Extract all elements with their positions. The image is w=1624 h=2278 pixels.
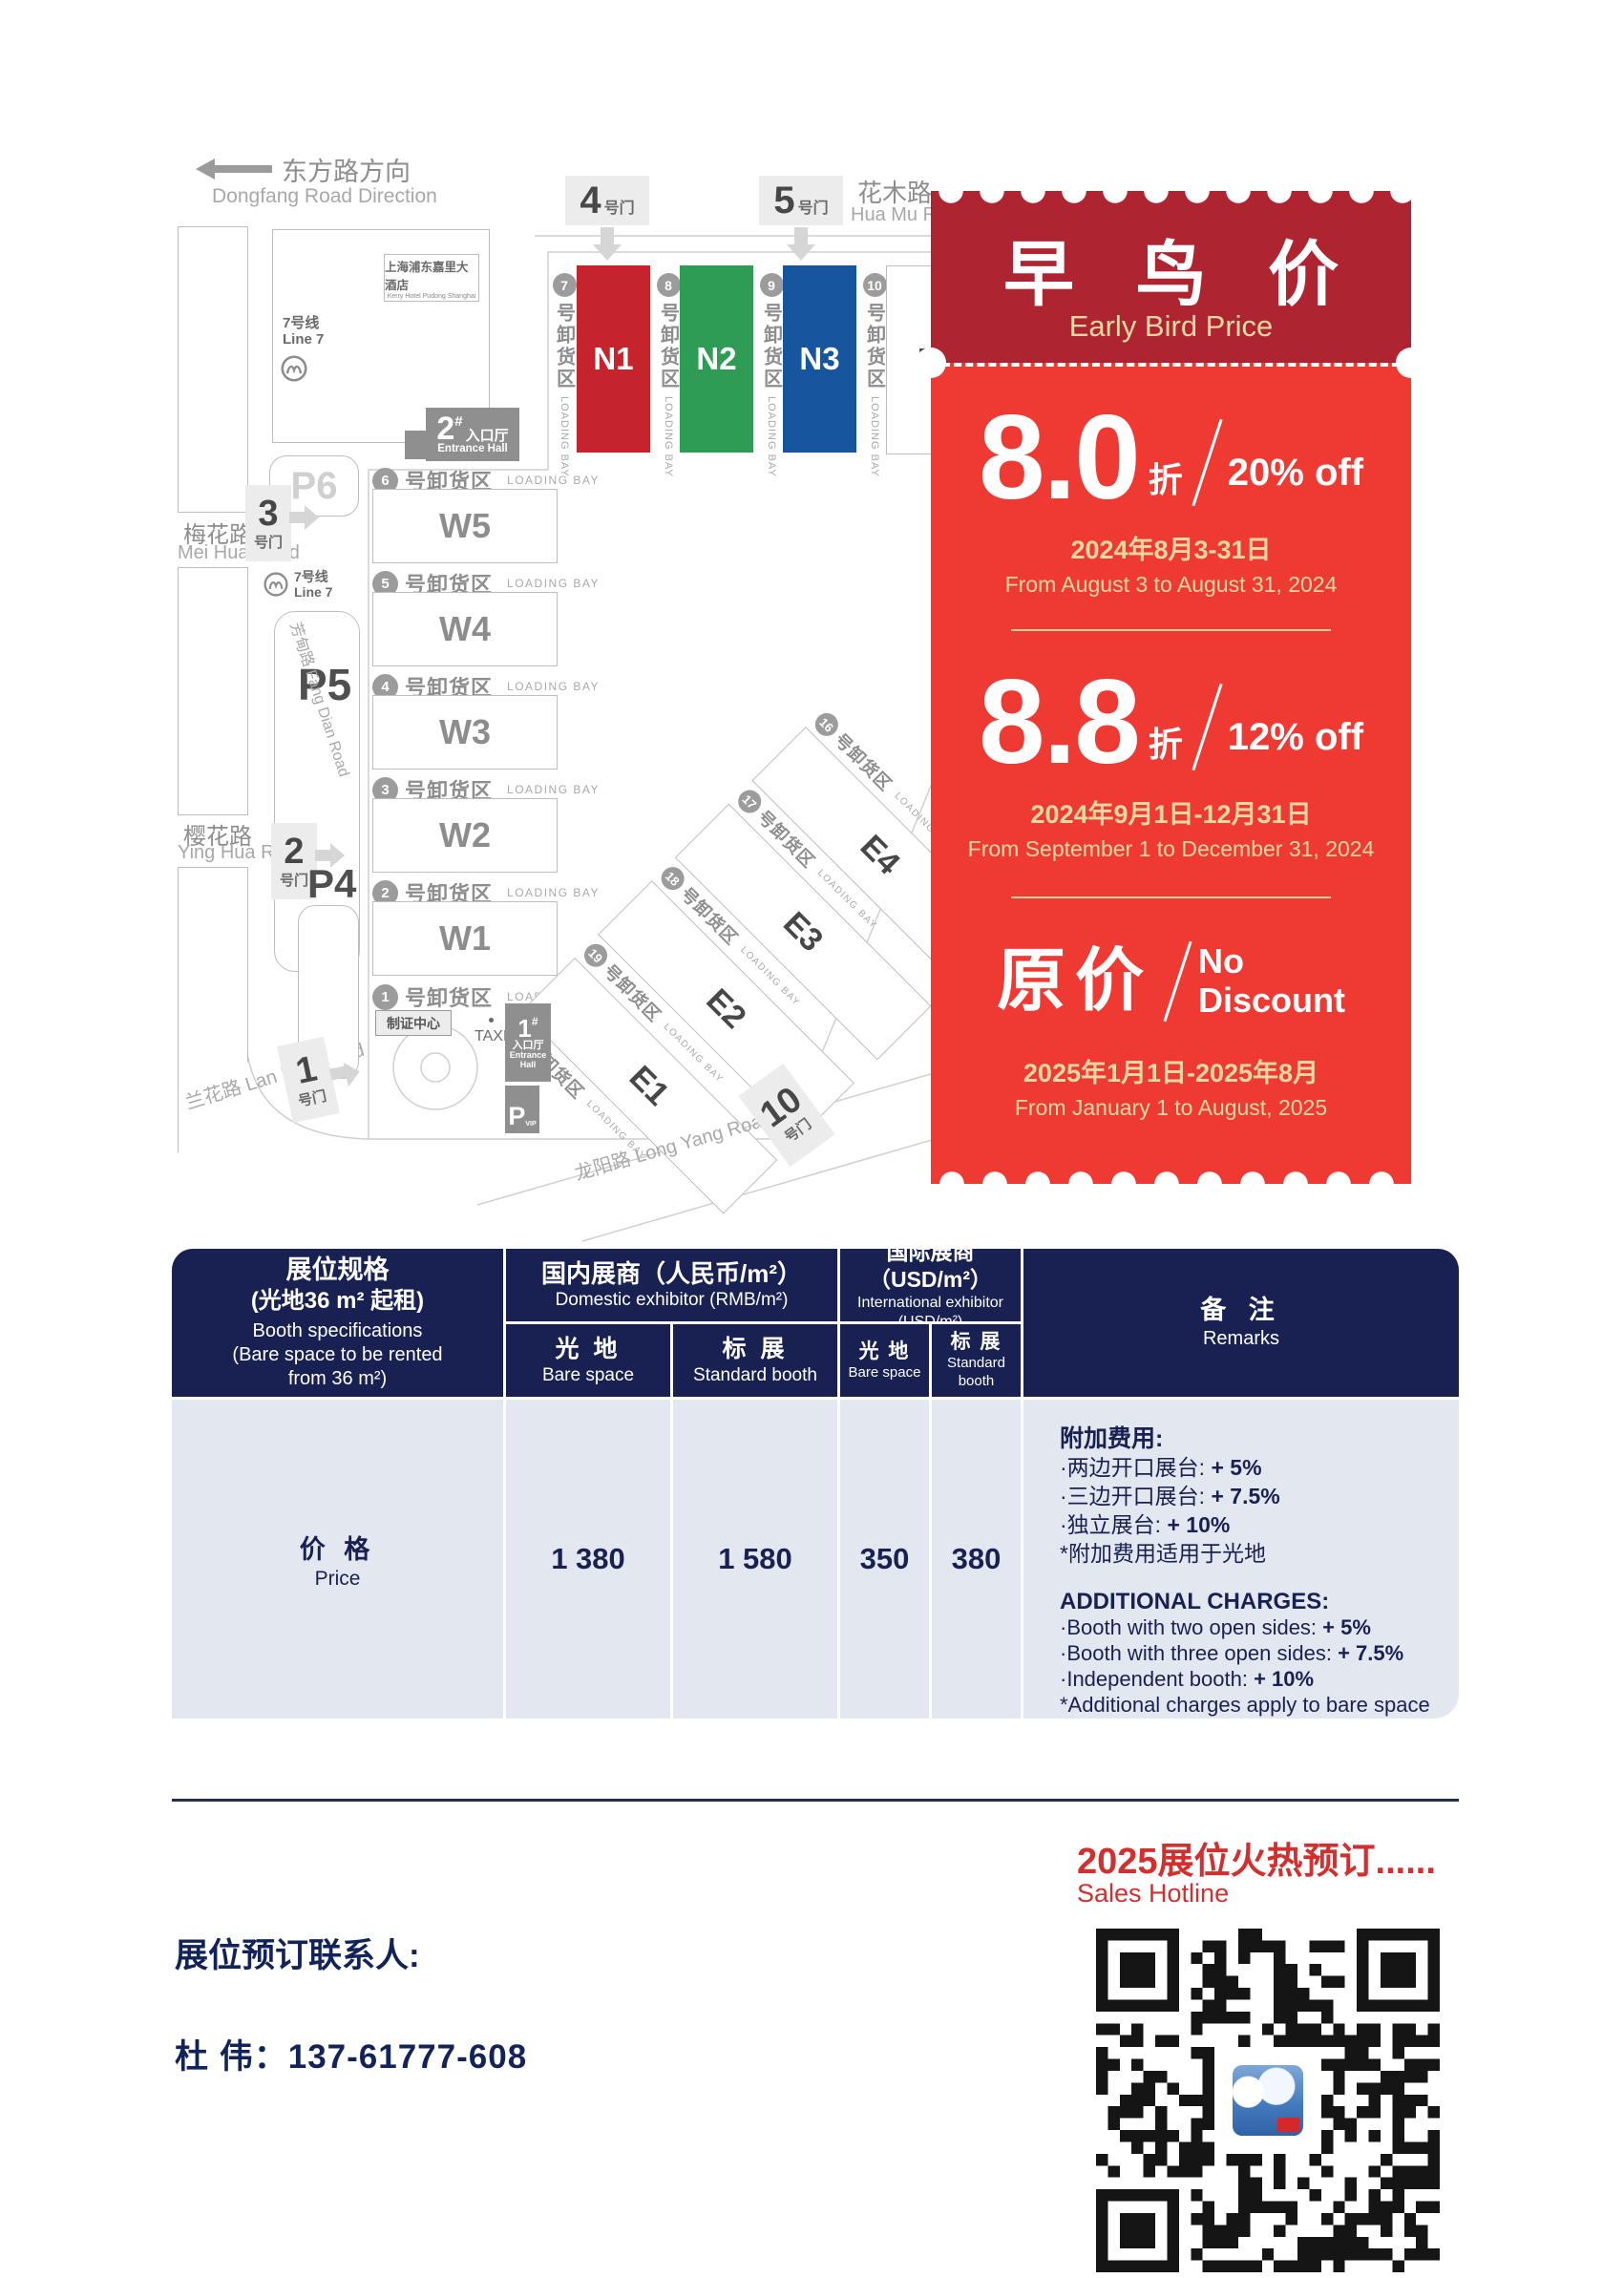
city-block-2: [178, 567, 248, 815]
loading-bay-8: 8 号卸货区 LOADING BAY: [655, 273, 682, 477]
entrance-2-hash: #: [454, 414, 462, 430]
tier3-label-en: No Discount: [1198, 941, 1345, 1021]
remarks-en-title: ADDITIONAL CHARGES:: [1060, 1589, 1444, 1614]
coupon-title-zh: 早 鸟 价: [931, 218, 1411, 320]
gate-5: 5号门: [759, 176, 843, 225]
remarks-en-item: ·Independent booth: + 10%: [1060, 1666, 1444, 1692]
road-dongfang-en: Dongfang Road Direction: [212, 185, 437, 208]
tier2-date-en: From September 1 to December 31, 2024: [931, 836, 1411, 862]
footer-divider: [172, 1799, 1459, 1802]
price-international-standard: 380: [932, 1400, 1021, 1719]
dongfang-arrow-icon: [196, 158, 215, 179]
tier1-slash: [1192, 418, 1222, 505]
row-label-price: 价 格 Price: [172, 1400, 503, 1719]
tier1-date-en: From August 3 to August 31, 2024: [931, 572, 1411, 598]
entrance-hall-1: 1 # 入口厅 Entrance Hall: [505, 1003, 551, 1082]
tier3-date-zh: 2025年1月1日-2025年8月: [931, 1052, 1411, 1089]
wechat-qr-code: [1096, 1929, 1440, 2272]
coupon-divider-1: [1011, 629, 1331, 631]
entrance-1-hash: #: [532, 1016, 538, 1028]
parking-p4-label: P4: [307, 861, 356, 907]
col-header-spec: 展位规格 (光地36 m² 起租) Booth specifications (…: [172, 1249, 503, 1397]
loading-bay-9: 9 号卸货区 LOADING BAY: [758, 273, 785, 477]
gate-4-arrow-icon: [601, 227, 614, 244]
coupon-scallop-bottom: [931, 1170, 1411, 1184]
metro-line7-label: 7号线 Line 7: [283, 315, 324, 348]
hotel-label-box: 上海浦东嘉里大酒店 Kerry Hotel Pudong Shanghai: [384, 254, 479, 302]
gate-3-arrow-icon: [289, 512, 305, 523]
remarks-cn-item: ·两边开口展台: + 5%: [1060, 1453, 1444, 1482]
qr-center-logo: [1227, 2059, 1309, 2141]
subheader-international-standard: 标 展 Standard booth: [932, 1324, 1021, 1397]
tier2-unit: 折: [1149, 717, 1183, 767]
entrance-1-num: 1: [517, 1016, 531, 1041]
venue-map: 东方路方向 Dongfang Road Direction 4号门 5号门 花木…: [0, 0, 1050, 1260]
gate-4-arrow-head: [593, 244, 622, 261]
tier1-number: 8.0: [979, 410, 1139, 508]
taxi-dot: [489, 1018, 494, 1023]
remarks-en-note: *Additional charges apply to bare space: [1060, 1692, 1444, 1718]
subheader-domestic-bare: 光 地 Bare space: [506, 1324, 670, 1397]
hall-w1: W1: [372, 901, 558, 976]
entrance-hall-2-step: [405, 431, 426, 459]
early-bird-coupon: 早 鸟 价 Early Bird Price 8.0 折 20% off 202…: [931, 191, 1411, 1184]
qr-logo-sky-image: [1233, 2065, 1303, 2136]
hall-w4: W4: [372, 592, 558, 666]
hall-w5: W5: [372, 489, 558, 563]
tier2-percent: 12% off: [1228, 716, 1363, 759]
qr-logo-flag-icon: [1277, 2118, 1300, 2132]
gate-5-arrow-head: [787, 244, 815, 261]
loading-bay-7: 7 号卸货区 LOADING BAY: [551, 273, 578, 477]
vip-parking: P VIP: [505, 1086, 539, 1133]
road-dongfang-zh: 东方路方向: [282, 151, 411, 188]
gate-3-arrow-head: [305, 505, 319, 530]
tier2-date-zh: 2024年9月1日-12月31日: [931, 793, 1411, 831]
metro-icon-2: [264, 572, 288, 597]
discount-tier-2: 8.8 折 12% off 2024年9月1日-12月31日 From Sept…: [931, 674, 1411, 862]
col-header-remarks: 备 注 Remarks: [1023, 1249, 1459, 1397]
subheader-domestic-standard: 标 展 Standard booth: [673, 1324, 837, 1397]
metro-line7-label-2: 7号线 Line 7: [264, 569, 332, 600]
entrance-1-en2: Hall: [520, 1061, 537, 1069]
hall-w3: W3: [372, 695, 558, 770]
metro-icon: [281, 355, 307, 382]
sales-hotline-title: 2025展位火热预订......: [1077, 1831, 1436, 1884]
coupon-divider-2: [1011, 896, 1331, 898]
hall-n3: N3: [783, 265, 856, 453]
remarks-cn-item: ·独立展台: + 10%: [1060, 1510, 1444, 1539]
tier3-label-zh: 原价: [997, 949, 1153, 1014]
entrance-hall-2: 2 # 入口厅 Entrance Hall: [426, 408, 519, 461]
coupon-scallop-top: [931, 191, 1411, 205]
group-header-domestic: 国内展商（人民币/m²） Domestic exhibitor (RMB/m²): [506, 1249, 837, 1321]
hotel-name-zh: 上海浦东嘉里大酒店: [385, 257, 478, 293]
gate-3: 3号门: [245, 485, 291, 561]
booking-contact-phone: 杜 伟：137-61777-608: [175, 2030, 527, 2078]
tier1-date-zh: 2024年8月3-31日: [931, 529, 1411, 566]
badge-center: 制证中心: [375, 1010, 452, 1036]
gate-2-arrow-icon: [315, 850, 330, 861]
hall-n1: N1: [577, 265, 650, 453]
coupon-header: 早 鸟 价 Early Bird Price: [931, 191, 1411, 363]
remarks-cn-title: 附加费用:: [1060, 1424, 1444, 1453]
hall-w2: W2: [372, 798, 558, 873]
booking-contact-label: 展位预订联系人:: [175, 1929, 420, 1977]
remarks-en-item: ·Booth with two open sides: + 5%: [1060, 1614, 1444, 1640]
remarks-cn-item: ·三边开口展台: + 7.5%: [1060, 1482, 1444, 1510]
tier1-unit: 折: [1149, 453, 1183, 502]
tier3-slash: [1163, 941, 1192, 1023]
loading-bay-10: 10 号卸货区 LOADING BAY: [861, 273, 888, 477]
tier2-slash: [1192, 683, 1222, 770]
tier3-date-en: From January 1 to August, 2025: [931, 1095, 1411, 1121]
coupon-notch-right: [1396, 348, 1426, 378]
tier1-percent: 20% off: [1228, 452, 1363, 495]
entrance-2-en: Entrance Hall: [437, 443, 508, 454]
coupon-notch-left: [916, 348, 946, 378]
remarks-cell: 附加费用: ·两边开口展台: + 5% ·三边开口展台: + 7.5% ·独立展…: [1023, 1400, 1459, 1719]
price-domestic-bare: 1 380: [506, 1400, 670, 1719]
remarks-cn-note: *附加费用适用于光地: [1060, 1539, 1444, 1568]
entrance-2-num: 2: [436, 414, 454, 444]
price-domestic-standard: 1 580: [673, 1400, 837, 1719]
sales-hotline-subtitle: Sales Hotline: [1077, 1879, 1229, 1909]
gate-4: 4号门: [565, 176, 649, 225]
dongfang-arrow-shaft: [213, 165, 272, 173]
hall-n2: N2: [680, 265, 753, 453]
group-header-international: 国际展商（USD/m²） International exhibitor (US…: [840, 1249, 1021, 1321]
coupon-title-en: Early Bird Price: [931, 309, 1411, 344]
city-block-1: [178, 226, 248, 513]
coupon-body: 8.0 折 20% off 2024年8月3-31日 From August 3…: [931, 363, 1411, 1184]
discount-tier-1: 8.0 折 20% off 2024年8月3-31日 From August 3…: [931, 410, 1411, 598]
taxi-label: TAXI: [475, 1028, 507, 1045]
remarks-en-item: ·Booth with three open sides: + 7.5%: [1060, 1640, 1444, 1666]
flyer-page: 东方路方向 Dongfang Road Direction 4号门 5号门 花木…: [0, 0, 1624, 2278]
price-international-bare: 350: [840, 1400, 929, 1719]
gate-5-arrow-icon: [794, 227, 808, 244]
entrance-2-zh: 入口厅: [466, 429, 509, 444]
hotel-name-en: Kerry Hotel Pudong Shanghai: [388, 293, 476, 300]
discount-tier-3: 原价 No Discount 2025年1月1日-2025年8月 From Ja…: [931, 939, 1411, 1121]
subheader-international-bare: 光 地 Bare space: [840, 1324, 929, 1397]
pricing-table: 展位规格 (光地36 m² 起租) Booth specifications (…: [172, 1249, 1459, 1719]
tier2-number: 8.8: [979, 674, 1139, 772]
